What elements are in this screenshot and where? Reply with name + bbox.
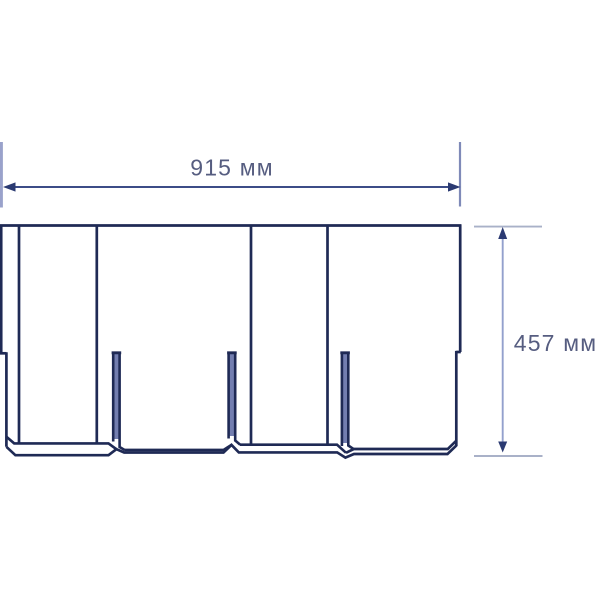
svg-text:457 мм: 457 мм xyxy=(514,330,598,356)
svg-text:915 мм: 915 мм xyxy=(190,155,274,181)
